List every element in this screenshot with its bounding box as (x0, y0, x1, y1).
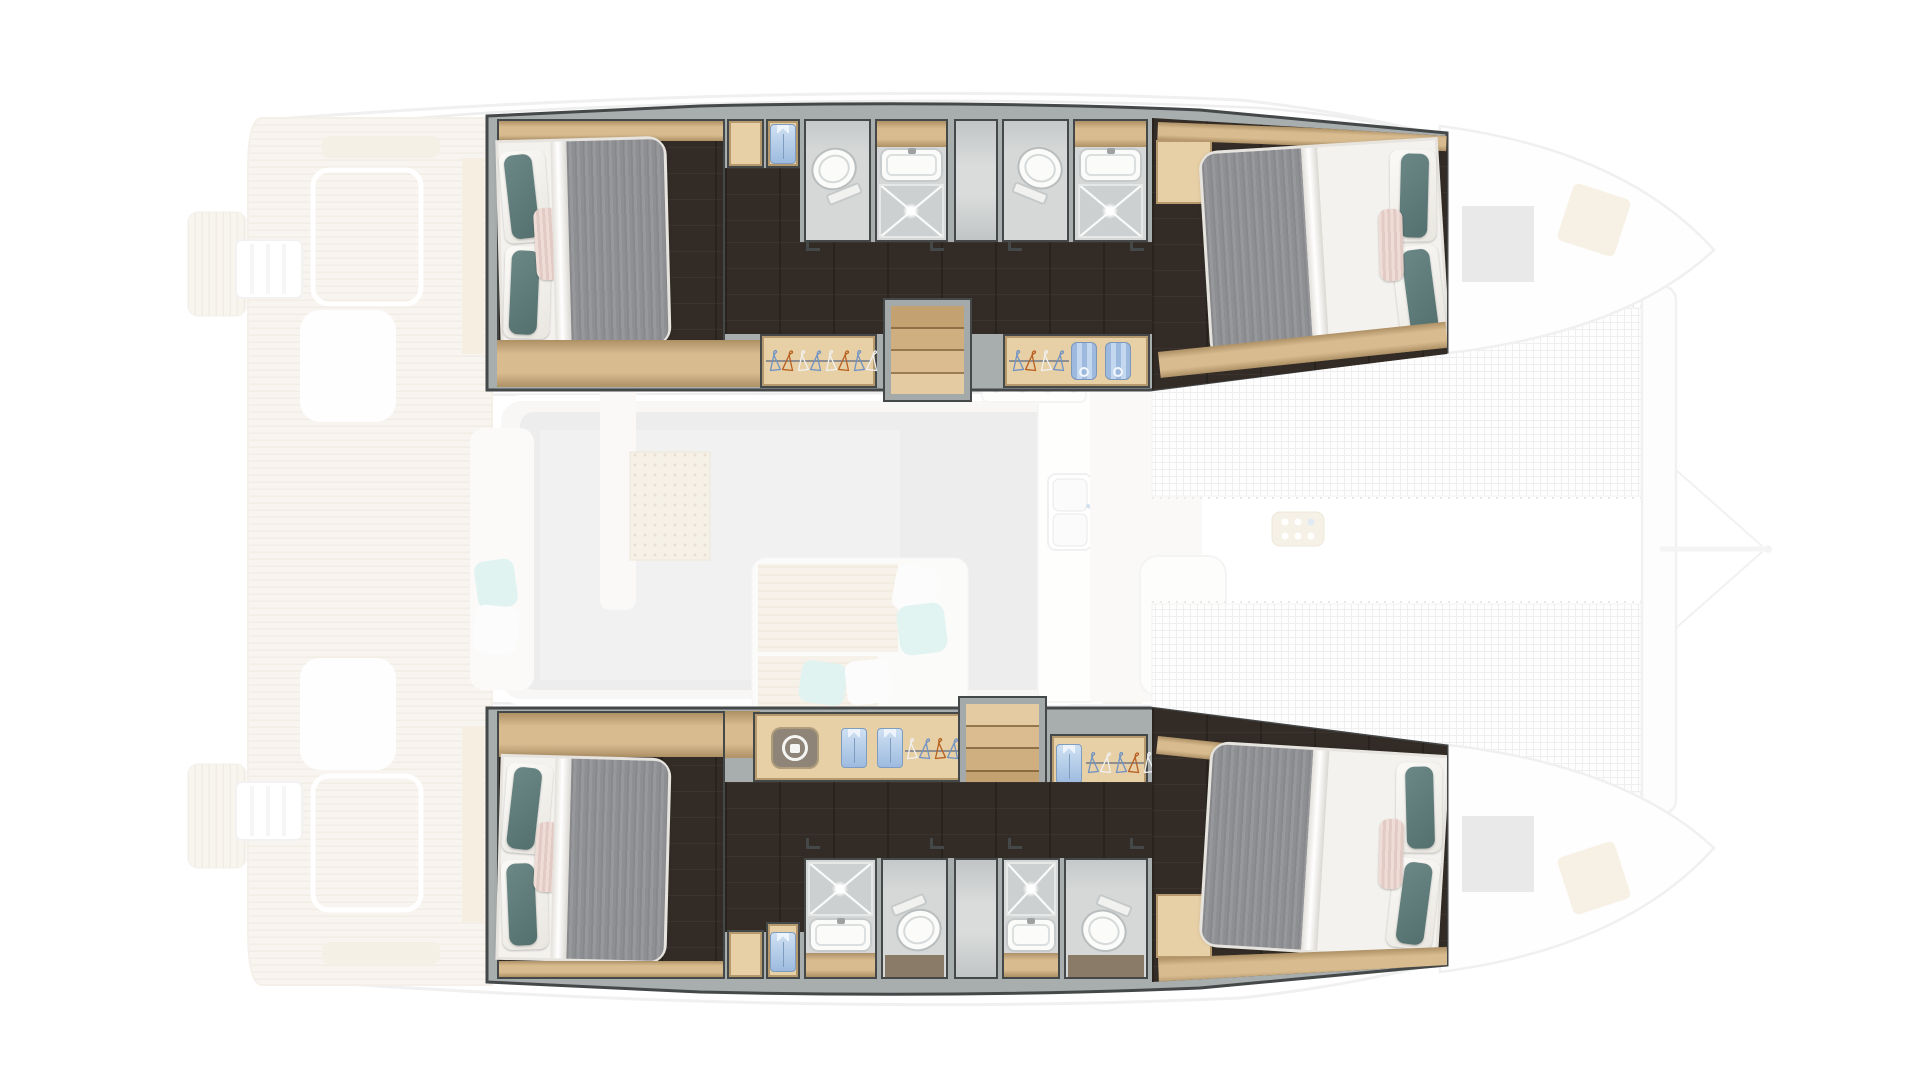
sink-icon (1006, 918, 1056, 952)
washing-machine-icon (773, 729, 817, 767)
ceiling-light-icon (832, 881, 848, 897)
door-jamb (1130, 846, 1144, 849)
bath-mat (885, 955, 944, 977)
locker (727, 930, 764, 979)
double-bed-icon (498, 757, 668, 961)
stbd-fwd-cabin (1152, 706, 1447, 984)
headboard-shelf (499, 713, 723, 757)
toilet-room (1064, 858, 1148, 979)
vanity-top (1004, 953, 1058, 977)
vanity-top (806, 953, 875, 977)
toilet-icon (882, 887, 948, 959)
shower-icon (1006, 862, 1056, 916)
folded-shirt-icon (877, 728, 903, 768)
starboard-hull (0, 0, 1920, 1080)
double-bed-icon (1201, 744, 1447, 958)
hanger-row (1086, 740, 1155, 786)
door-jamb (930, 846, 944, 849)
pillow (1405, 766, 1435, 849)
door-jamb (1008, 846, 1022, 849)
shirt-locker (766, 922, 800, 979)
corridor (725, 856, 804, 932)
duvet (1201, 744, 1313, 950)
toilet-room (881, 858, 948, 979)
washer-wardrobe (753, 712, 962, 782)
foot-shelf (499, 961, 723, 977)
pillow (1378, 819, 1404, 890)
technical-shaft (954, 858, 998, 979)
bath-mat (1068, 955, 1144, 977)
folded-shirt-icon (841, 728, 867, 768)
hanging-shirt-icon (770, 932, 796, 972)
shower-icon (808, 862, 873, 916)
duvet (566, 759, 668, 961)
folded-shirt-icon (1056, 744, 1082, 784)
shower-room (1002, 858, 1060, 979)
stbd-aft-cabin (497, 711, 725, 979)
door-jamb (806, 846, 820, 849)
toilet-icon (1073, 887, 1139, 959)
pillow (506, 863, 538, 946)
sink-icon (809, 918, 872, 952)
shower-room (804, 858, 877, 979)
ceiling-light-icon (1023, 881, 1039, 897)
floor-plan-stage (0, 0, 1920, 1080)
